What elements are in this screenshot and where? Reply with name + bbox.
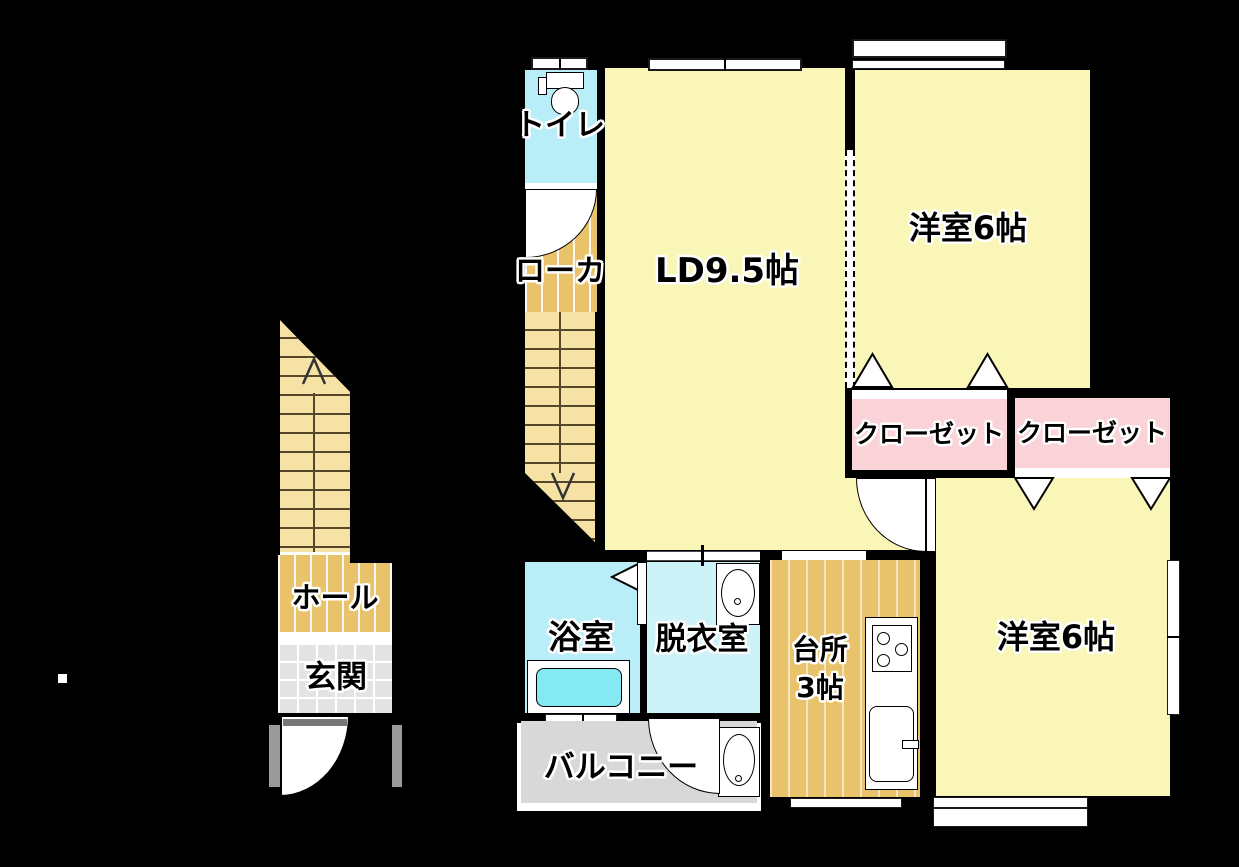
bath-door-jamb [637,562,647,625]
floor-plan: トイレ ローカ LD9.5帖 洋室6帖 クローゼット クローゼット 洋室6帖 [0,0,1239,867]
entrance-step [278,632,392,643]
bathtub-basin [536,668,622,707]
front-door-leaf [283,719,347,726]
door-jamb [269,725,280,787]
bedroom-top-window-sill [852,60,1005,69]
closet-door-triangle [1130,477,1172,511]
dressing-label: 脱衣室 [656,625,749,656]
toilet-flush-handle-icon [538,77,547,95]
kitchen-opening [782,551,866,560]
stove-burner-icon [895,643,908,656]
balcony-label: バルコニー [544,753,698,784]
washbasin-drain [734,598,741,605]
stairs-up [280,320,350,552]
bedroom-bottom-window [933,797,1088,808]
bedroom-bottom-door-leaf [926,478,936,552]
wall [350,555,392,563]
plan-mark [58,674,67,683]
stairs-divider [313,393,315,552]
window-divider [559,57,561,70]
bedroom-bottom-label: 洋室6帖 [997,621,1115,653]
window-divider [1167,636,1180,638]
kitchen-bottom-window [790,798,902,808]
closet-left-label: クローゼット [854,422,1004,447]
entrance-label: 玄関 [305,663,367,694]
bathroom-label: 浴室 [548,621,614,654]
closet-right-label: クローゼット [1017,421,1167,446]
faucet-icon [902,740,919,749]
bath-door-triangle [609,562,640,592]
room-living-dining [605,68,845,550]
utility-sink-drain [735,775,742,782]
closet-left-sill [852,390,1007,399]
toilet-label: トイレ [515,111,605,141]
closet-door-triangle [966,352,1009,389]
down-arrow-icon [549,470,577,502]
bedroom-top-window [852,39,1007,58]
sliding-door-tick [701,545,704,566]
living-dining-label: LD9.5帖 [655,254,799,288]
kitchen-label-line1: 台所 [792,636,848,664]
corridor-label: ローカ [515,257,605,287]
front-door-arc [280,715,350,797]
door-jamb-cap [392,715,402,725]
closet-door-triangle [1013,477,1055,511]
bedroom-bottom-window-sill [933,808,1088,827]
closet-door-triangle [851,352,894,389]
window-divider [724,58,726,71]
stove-burner-icon [877,654,890,667]
up-arrow-icon [300,356,328,388]
washbasin-bowl [721,569,755,617]
kitchen-label-line2: 3帖 [796,674,843,702]
hall-label: ホール [291,584,378,613]
door-jamb [392,725,402,787]
stove-burner-icon [877,632,890,645]
door-jamb-cap [269,715,280,725]
bedroom-top-label: 洋室6帖 [909,212,1027,244]
stairs-divider [559,312,561,473]
